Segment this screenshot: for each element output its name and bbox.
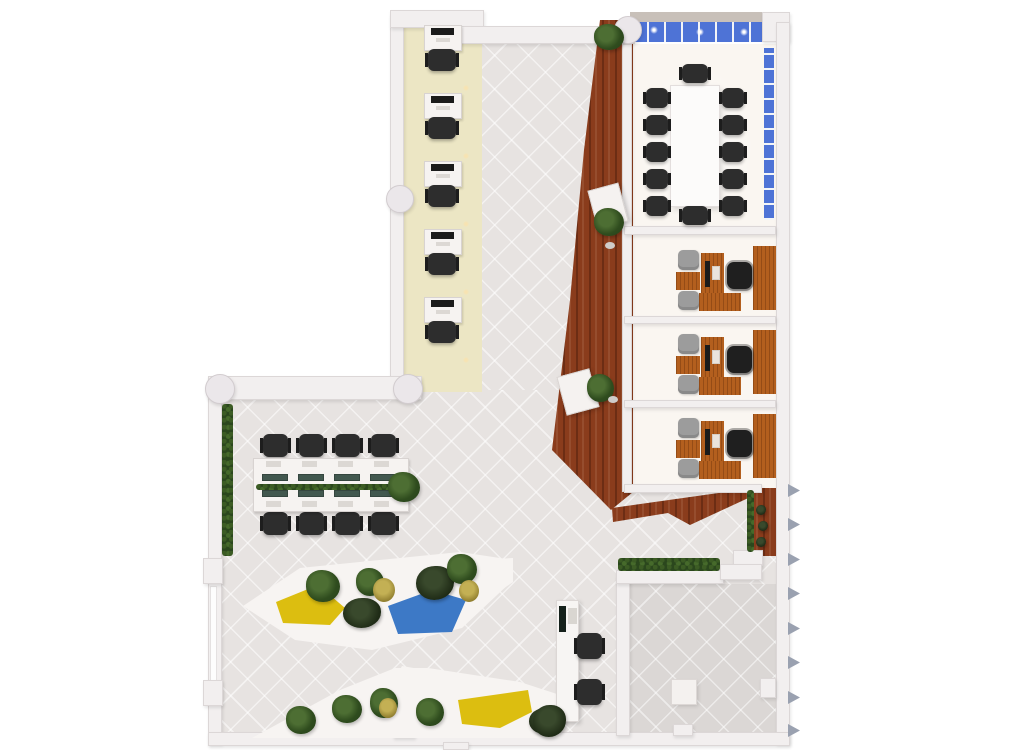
workstation-monitor bbox=[431, 96, 454, 103]
workstation-monitor bbox=[431, 164, 454, 171]
office-desk-return bbox=[699, 293, 741, 311]
bench-task-chair bbox=[299, 434, 324, 457]
lounge2-plant-5 bbox=[416, 698, 444, 726]
conference-chair bbox=[722, 169, 744, 189]
conference-chair bbox=[646, 196, 668, 216]
guest-chair bbox=[678, 375, 699, 394]
guest-chair bbox=[678, 334, 699, 354]
reception-chair-1 bbox=[577, 633, 602, 659]
bench-task-chair bbox=[263, 434, 288, 457]
column-left-wall-2 bbox=[203, 680, 223, 706]
wall-right bbox=[776, 22, 790, 744]
window-light-1 bbox=[650, 26, 658, 34]
guest-chair bbox=[678, 459, 699, 478]
reception-tray bbox=[568, 608, 577, 624]
hedge-left-wall bbox=[222, 404, 233, 556]
facade-fin bbox=[788, 691, 800, 704]
bench-planter-divider bbox=[256, 484, 392, 490]
lounge2-plant-1 bbox=[286, 706, 316, 734]
conference-chair bbox=[722, 142, 744, 162]
patio-square bbox=[672, 680, 696, 704]
bench-task-chair bbox=[371, 434, 396, 457]
desk-keyboard bbox=[712, 350, 720, 364]
office-desk-return bbox=[699, 377, 741, 395]
desk-paper bbox=[302, 501, 317, 507]
conference-chair bbox=[646, 115, 668, 135]
workstation-chair bbox=[428, 49, 456, 71]
bench-task-chair bbox=[263, 512, 288, 535]
bench-task-chair bbox=[335, 434, 360, 457]
conference-chair bbox=[722, 115, 744, 135]
workstation-keyboard bbox=[436, 38, 450, 42]
bench-task-chair bbox=[371, 512, 396, 535]
conference-table bbox=[671, 86, 719, 206]
floor-patio bbox=[628, 584, 776, 734]
conference-chair bbox=[722, 88, 744, 108]
desk-monitor bbox=[705, 429, 710, 455]
office-credenza bbox=[753, 246, 776, 310]
bench-monitor bbox=[334, 490, 360, 497]
workstation-monitor bbox=[431, 232, 454, 239]
conference-chair bbox=[646, 88, 668, 108]
guest-chair bbox=[678, 418, 699, 438]
reception-chair-2 bbox=[577, 679, 602, 705]
wall-patio-left bbox=[616, 576, 630, 736]
window-light-3 bbox=[740, 28, 748, 36]
bench-end-plant bbox=[388, 472, 420, 502]
hedge-wood-strip bbox=[747, 490, 754, 552]
facade-fin bbox=[788, 724, 800, 737]
lounge1-plant-6 bbox=[447, 554, 477, 584]
desk-keyboard bbox=[712, 434, 720, 448]
facade-fin bbox=[788, 622, 800, 635]
office-credenza bbox=[753, 414, 776, 478]
workstation-chair bbox=[428, 185, 456, 207]
wall-rooms-left bbox=[622, 44, 632, 492]
lounge1-plant-4 bbox=[373, 578, 395, 602]
wall-patio-ledge bbox=[720, 564, 762, 580]
workstation-keyboard bbox=[436, 242, 450, 246]
guest-chair bbox=[678, 250, 699, 270]
window-light-2 bbox=[696, 28, 704, 36]
column-round-midwall-right bbox=[393, 374, 423, 404]
office-desk-return bbox=[699, 461, 741, 479]
stub-patio-right bbox=[760, 678, 776, 698]
lectern-upper-plant bbox=[594, 208, 624, 236]
window-band-right bbox=[764, 48, 774, 220]
workstation-keyboard bbox=[436, 106, 450, 110]
desk-paper bbox=[266, 461, 281, 467]
lectern-upper-stool bbox=[605, 242, 615, 249]
bench-monitor bbox=[262, 490, 288, 497]
bench-monitor bbox=[334, 474, 360, 481]
desk-paper bbox=[266, 501, 281, 507]
coffee-table bbox=[676, 272, 700, 290]
stub-bottom-exterior bbox=[443, 742, 469, 750]
office-floorplan-render bbox=[0, 0, 1024, 750]
exec-chair bbox=[727, 430, 752, 457]
reception-screen bbox=[559, 606, 566, 632]
ceiling-downlight bbox=[463, 153, 469, 159]
column-round-midwall-left bbox=[205, 374, 235, 404]
desk-paper bbox=[338, 501, 353, 507]
facade-fin bbox=[788, 518, 800, 531]
workstation-monitor bbox=[431, 28, 454, 35]
walkway-plant-top bbox=[594, 24, 624, 50]
lectern-lower-stool bbox=[608, 396, 618, 403]
conference-chair bbox=[646, 142, 668, 162]
ceiling-downlight bbox=[463, 85, 469, 91]
facade-fin bbox=[788, 484, 800, 497]
ceiling-downlight bbox=[463, 221, 469, 227]
desk-paper bbox=[302, 461, 317, 467]
ceiling-downlight bbox=[463, 357, 469, 363]
workstation-keyboard bbox=[436, 310, 450, 314]
hedge-patio-top bbox=[618, 558, 720, 571]
wall-offices-bottom bbox=[624, 484, 762, 493]
bench-task-chair bbox=[299, 512, 324, 535]
desk-paper bbox=[374, 461, 389, 467]
desk-paper bbox=[338, 461, 353, 467]
exec-chair bbox=[727, 262, 752, 289]
desk-keyboard bbox=[712, 266, 720, 280]
office-credenza bbox=[753, 330, 776, 394]
desk-monitor bbox=[705, 261, 710, 287]
workstation-chair bbox=[428, 321, 456, 343]
conference-chair bbox=[722, 196, 744, 216]
lounge2-plant-4 bbox=[379, 698, 397, 718]
glazing-left-wall bbox=[210, 586, 217, 684]
workstation-chair bbox=[428, 117, 456, 139]
conference-chair bbox=[682, 64, 708, 83]
facade-fin bbox=[788, 553, 800, 566]
bench-monitor bbox=[298, 474, 324, 481]
column-left-wall-1 bbox=[203, 558, 223, 584]
ceiling-downlight bbox=[463, 289, 469, 295]
workstation-chair bbox=[428, 253, 456, 275]
wall-mid-horizontal bbox=[208, 376, 422, 400]
facade-fin bbox=[788, 656, 800, 669]
workstation-keyboard bbox=[436, 174, 450, 178]
wall-office-divider-1 bbox=[624, 316, 776, 324]
stub-patio-bottom bbox=[673, 724, 693, 736]
facade-fin bbox=[788, 587, 800, 600]
lounge1-plant-7 bbox=[459, 580, 479, 602]
coffee-table bbox=[676, 440, 700, 458]
column-round-corridor bbox=[386, 185, 414, 213]
wall-conference-bottom bbox=[624, 226, 776, 235]
lounge2-plant-2 bbox=[332, 695, 362, 723]
coffee-table bbox=[676, 356, 700, 374]
bench-monitor bbox=[262, 474, 288, 481]
exec-chair bbox=[727, 346, 752, 373]
workstation-monitor bbox=[431, 300, 454, 307]
guest-chair bbox=[678, 291, 699, 310]
lounge1-plant-1 bbox=[306, 570, 340, 602]
conference-chair bbox=[682, 206, 708, 225]
conference-chair bbox=[646, 169, 668, 189]
desk-paper bbox=[374, 501, 389, 507]
wall-patio-top bbox=[616, 570, 724, 584]
bench-task-chair bbox=[335, 512, 360, 535]
bench-monitor bbox=[298, 490, 324, 497]
desk-monitor bbox=[705, 345, 710, 371]
wall-office-divider-2 bbox=[624, 400, 776, 408]
